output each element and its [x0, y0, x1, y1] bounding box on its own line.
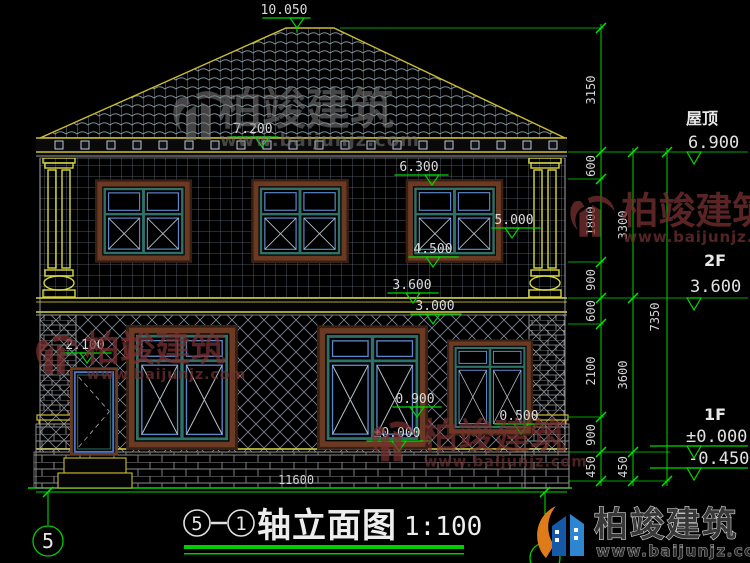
level-label-roof: 屋顶: [686, 109, 718, 128]
title-underline-thin: [184, 553, 464, 555]
dimension-chain1: 3150 600 1800 900 600 2100 900 450: [584, 76, 598, 478]
dim-7350: 7350: [648, 303, 662, 332]
elevation-value: 4.500: [413, 242, 452, 257]
level-1f: 1F ±0.000 -0.450: [650, 405, 749, 480]
cad-elevation-drawing: 10.050 7.200 6.300 5.000 4.500 3.600: [0, 0, 750, 563]
elevation-value: 6.300: [399, 160, 438, 175]
watermark-brand-text: 柏竣建筑: [422, 415, 566, 457]
level-2f: 2F 3.600: [687, 251, 741, 310]
drawing-canvas: 10.050 7.200 6.300 5.000 4.500 3.600: [0, 0, 750, 563]
elevation-value: 3.000: [415, 299, 454, 314]
dim-900b: 900: [584, 424, 598, 446]
watermark-site-text: www.baijunjz.com: [86, 367, 246, 383]
axis-line-left: 5: [33, 492, 63, 556]
drawing-scale: 1:100: [404, 512, 482, 542]
dim-11600: 11600: [278, 473, 314, 487]
watermark-brand-text: 柏竣建筑: [85, 329, 226, 370]
watermark-site-text: www.baijunjz.com: [623, 228, 750, 246]
window-2f-left: [96, 181, 190, 262]
elevation-value: 10.050: [261, 3, 308, 18]
axis-bubble-left-number: 5: [42, 529, 54, 553]
level-label-2f: 2F: [704, 251, 726, 270]
level-value-minus450: -0.450: [688, 449, 749, 469]
level-label-1f: 1F: [704, 405, 726, 424]
dimension-chain3: 7350: [648, 303, 662, 332]
dim-3600: 3600: [616, 361, 630, 390]
brand-logo-site: www.baijunjz.com: [596, 542, 750, 560]
level-roof: 屋顶 6.900: [686, 109, 739, 164]
title-underline-thick: [184, 545, 464, 549]
brand-logo: 柏竣建筑 www.baijunjz.com: [537, 505, 750, 560]
elevation-value: 5.000: [494, 213, 533, 228]
level-value-2f: 3.600: [690, 277, 741, 297]
watermark-brand-text: 柏竣建筑: [621, 189, 750, 232]
watermark-right-edge: 柏竣建筑 www.baijunjz.com: [570, 189, 750, 245]
level-value-roof: 6.900: [688, 133, 739, 153]
elevation-value: 0.900: [395, 392, 434, 407]
watermark-brand-text: 柏竣建筑: [218, 84, 394, 135]
window-2f-center: [253, 180, 348, 261]
level-value-1f: ±0.000: [686, 427, 747, 447]
elevation-value: 3.600: [392, 278, 431, 293]
title-block: 5 1 轴立面图 1:100: [184, 506, 482, 555]
watermark-site-text: www.baijunjz.com: [220, 130, 420, 151]
brand-logo-text: 柏竣建筑: [594, 505, 738, 545]
dim-600a: 600: [584, 155, 598, 177]
dim-450b: 450: [616, 456, 630, 478]
dim-3150: 3150: [584, 76, 598, 105]
title-bubble-left-number: 5: [191, 513, 202, 535]
dim-2100: 2100: [584, 357, 598, 386]
drawing-title: 轴立面图: [257, 506, 397, 546]
brand-logo-icon: [537, 506, 584, 558]
dimension-chain2: 3300 3600 450: [616, 211, 630, 478]
floor-band: [36, 298, 567, 315]
title-bubble-right-number: 1: [235, 513, 246, 535]
dim-600b: 600: [584, 300, 598, 322]
watermark-site-text: www.baijunjz.com: [424, 453, 588, 470]
dimension-chain-lines: [601, 24, 667, 486]
dimension-ticks: [596, 23, 672, 486]
dim-900a: 900: [584, 269, 598, 291]
entrance-steps: [58, 458, 132, 488]
